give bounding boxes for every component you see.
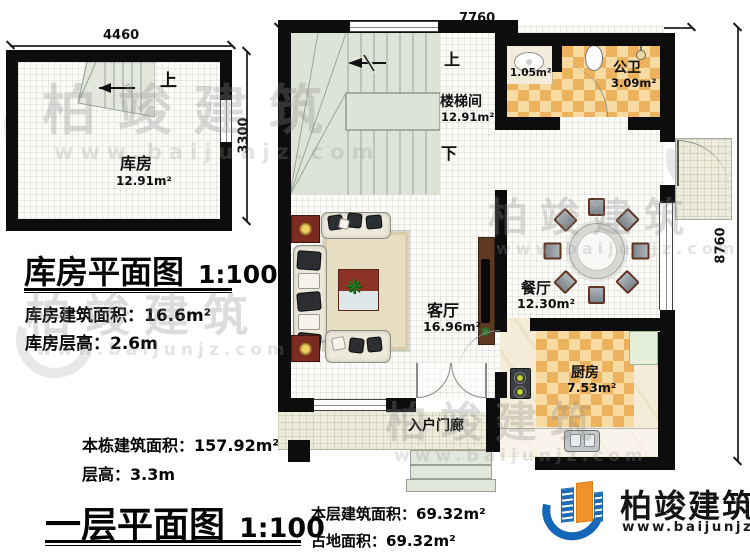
logo-building-icon (576, 481, 593, 523)
stairwell-name: 楼梯间 (440, 95, 482, 110)
title-underline (45, 545, 301, 546)
sink-basin (570, 434, 581, 447)
dining-name: 餐厅 (521, 281, 551, 297)
wall-segment (278, 20, 291, 412)
sofa-cushion (365, 214, 382, 229)
logo-building-icon (561, 487, 574, 523)
storage-plan-scale: 1:100 (198, 260, 278, 289)
toilet-bowl (585, 45, 603, 71)
storage-width-dimension: 4460 (103, 28, 139, 43)
window (220, 100, 232, 142)
stairwell-area: 12.91m² (441, 111, 494, 123)
stove-burner (514, 372, 526, 384)
dimension-line (737, 28, 739, 462)
entry-step (406, 479, 496, 492)
washroom-area: 1.05m² (510, 68, 551, 79)
sink-basin (584, 434, 595, 447)
stat-label: 层高： (82, 465, 130, 484)
wall-segment (658, 332, 675, 470)
storage-area-stat: 库房建筑面积：16.6m² (25, 301, 211, 326)
wall-segment (495, 33, 507, 130)
kitchen-area: 7.53m² (567, 381, 616, 394)
sofa-pillow (331, 336, 346, 351)
storage-room-area: 12.91m² (116, 175, 172, 188)
window (314, 399, 386, 411)
stat-value: 16.6m² (144, 306, 211, 326)
stairs-graphic (290, 33, 440, 195)
floor-area-stat: 本层建筑面积：69.32m² (311, 503, 486, 524)
wall-segment (530, 318, 660, 331)
stat-label: 占地面积： (311, 532, 386, 550)
stat-value: 3.3m (130, 465, 175, 484)
wall-segment (278, 398, 314, 412)
sofa-pillow (298, 314, 320, 330)
logo-building-icon (594, 491, 603, 522)
stat-label: 库房层高： (25, 334, 110, 354)
shower-head (636, 50, 646, 60)
stat-label: 本栋建筑面积： (82, 436, 194, 455)
building-area-stat: 本栋建筑面积：157.92m² (82, 432, 279, 456)
washbasin-drain (526, 59, 532, 65)
entry-step (410, 465, 492, 479)
wall-segment (660, 310, 675, 332)
storage-room-name: 库房 (120, 156, 152, 173)
wall-segment (495, 117, 560, 130)
wall-segment (495, 33, 675, 46)
sofa-cushion (296, 291, 322, 312)
entry-door-opening (416, 398, 486, 412)
title-underline (24, 292, 232, 293)
floor-height-stat: 层高：3.3m (82, 461, 175, 485)
dimension-line (10, 45, 232, 47)
sofa-pillow (298, 273, 320, 289)
storage-plan-title: 库房平面图 (24, 247, 184, 293)
window (350, 21, 438, 32)
sofa-cushion (348, 337, 365, 354)
dining-chair (544, 243, 562, 260)
floorplan-canvas: 柏竣建筑 www.baijunjz.com 柏竣建筑 www.baijunjz.… (0, 0, 750, 556)
stove-burner (514, 386, 526, 398)
wall-segment (486, 398, 500, 452)
storage-room-walls (6, 50, 232, 231)
plant-icon: ❋ (346, 276, 362, 298)
tv (481, 259, 490, 323)
wall-segment (628, 117, 675, 130)
door-jamb (416, 363, 418, 398)
dining-chair (588, 198, 605, 216)
door-jamb (485, 363, 487, 398)
wall-segment (660, 130, 675, 142)
sofa-pillow (338, 218, 350, 230)
wall-segment (495, 372, 507, 398)
storage-height-dimension: 3300 (237, 117, 252, 153)
stat-value: 2.6m (110, 334, 158, 354)
wall-segment (660, 33, 675, 130)
end-table (291, 215, 320, 243)
stat-value: 69.32m² (386, 532, 456, 550)
bathroom-name: 公卫 (613, 61, 641, 76)
storage-plan-title-row: 库房平面图 1:100 (24, 247, 278, 293)
stat-label: 库房建筑面积： (25, 306, 144, 326)
end-table (291, 335, 320, 362)
sofa-cushion (296, 250, 321, 271)
wall-segment (660, 185, 675, 203)
porch-column (288, 440, 310, 462)
living-area: 16.96m² (423, 320, 481, 333)
entry-step (410, 450, 492, 465)
storage-stairs-up-label: 上 (160, 73, 177, 91)
wall-segment (386, 398, 416, 412)
brand-logo: 柏竣建筑 www.baijunjz.com (540, 474, 745, 548)
stairs-up-label: 上 (444, 52, 460, 69)
logo-url-text: www.baijunjz.com (622, 519, 750, 535)
door-leaf (677, 140, 679, 186)
porch-name: 入户门廊 (408, 419, 464, 434)
bathroom-area: 3.09m² (611, 77, 656, 89)
dining-table-top (577, 231, 617, 271)
wall-segment (535, 457, 675, 470)
stairs-down-label: 下 (441, 146, 457, 163)
dining-area: 12.30m² (517, 297, 575, 310)
window (659, 203, 673, 310)
stat-value: 157.92m² (194, 436, 279, 455)
stat-value: 69.32m² (416, 505, 486, 523)
living-name: 客厅 (427, 303, 459, 320)
refrigerator (629, 331, 658, 365)
floor-height-dimension: 8760 (714, 227, 729, 263)
title-underline (24, 288, 232, 291)
wall-segment (495, 190, 507, 322)
dining-chair (632, 243, 650, 260)
kitchen-name: 厨房 (571, 366, 599, 381)
dining-chair (588, 286, 605, 304)
storage-height-stat: 库房层高：2.6m (25, 329, 158, 354)
stat-label: 本层建筑面积： (311, 505, 416, 523)
footprint-area-stat: 占地面积：69.32m² (311, 530, 456, 551)
title-underline (45, 540, 301, 543)
sofa-cushion (366, 336, 382, 352)
